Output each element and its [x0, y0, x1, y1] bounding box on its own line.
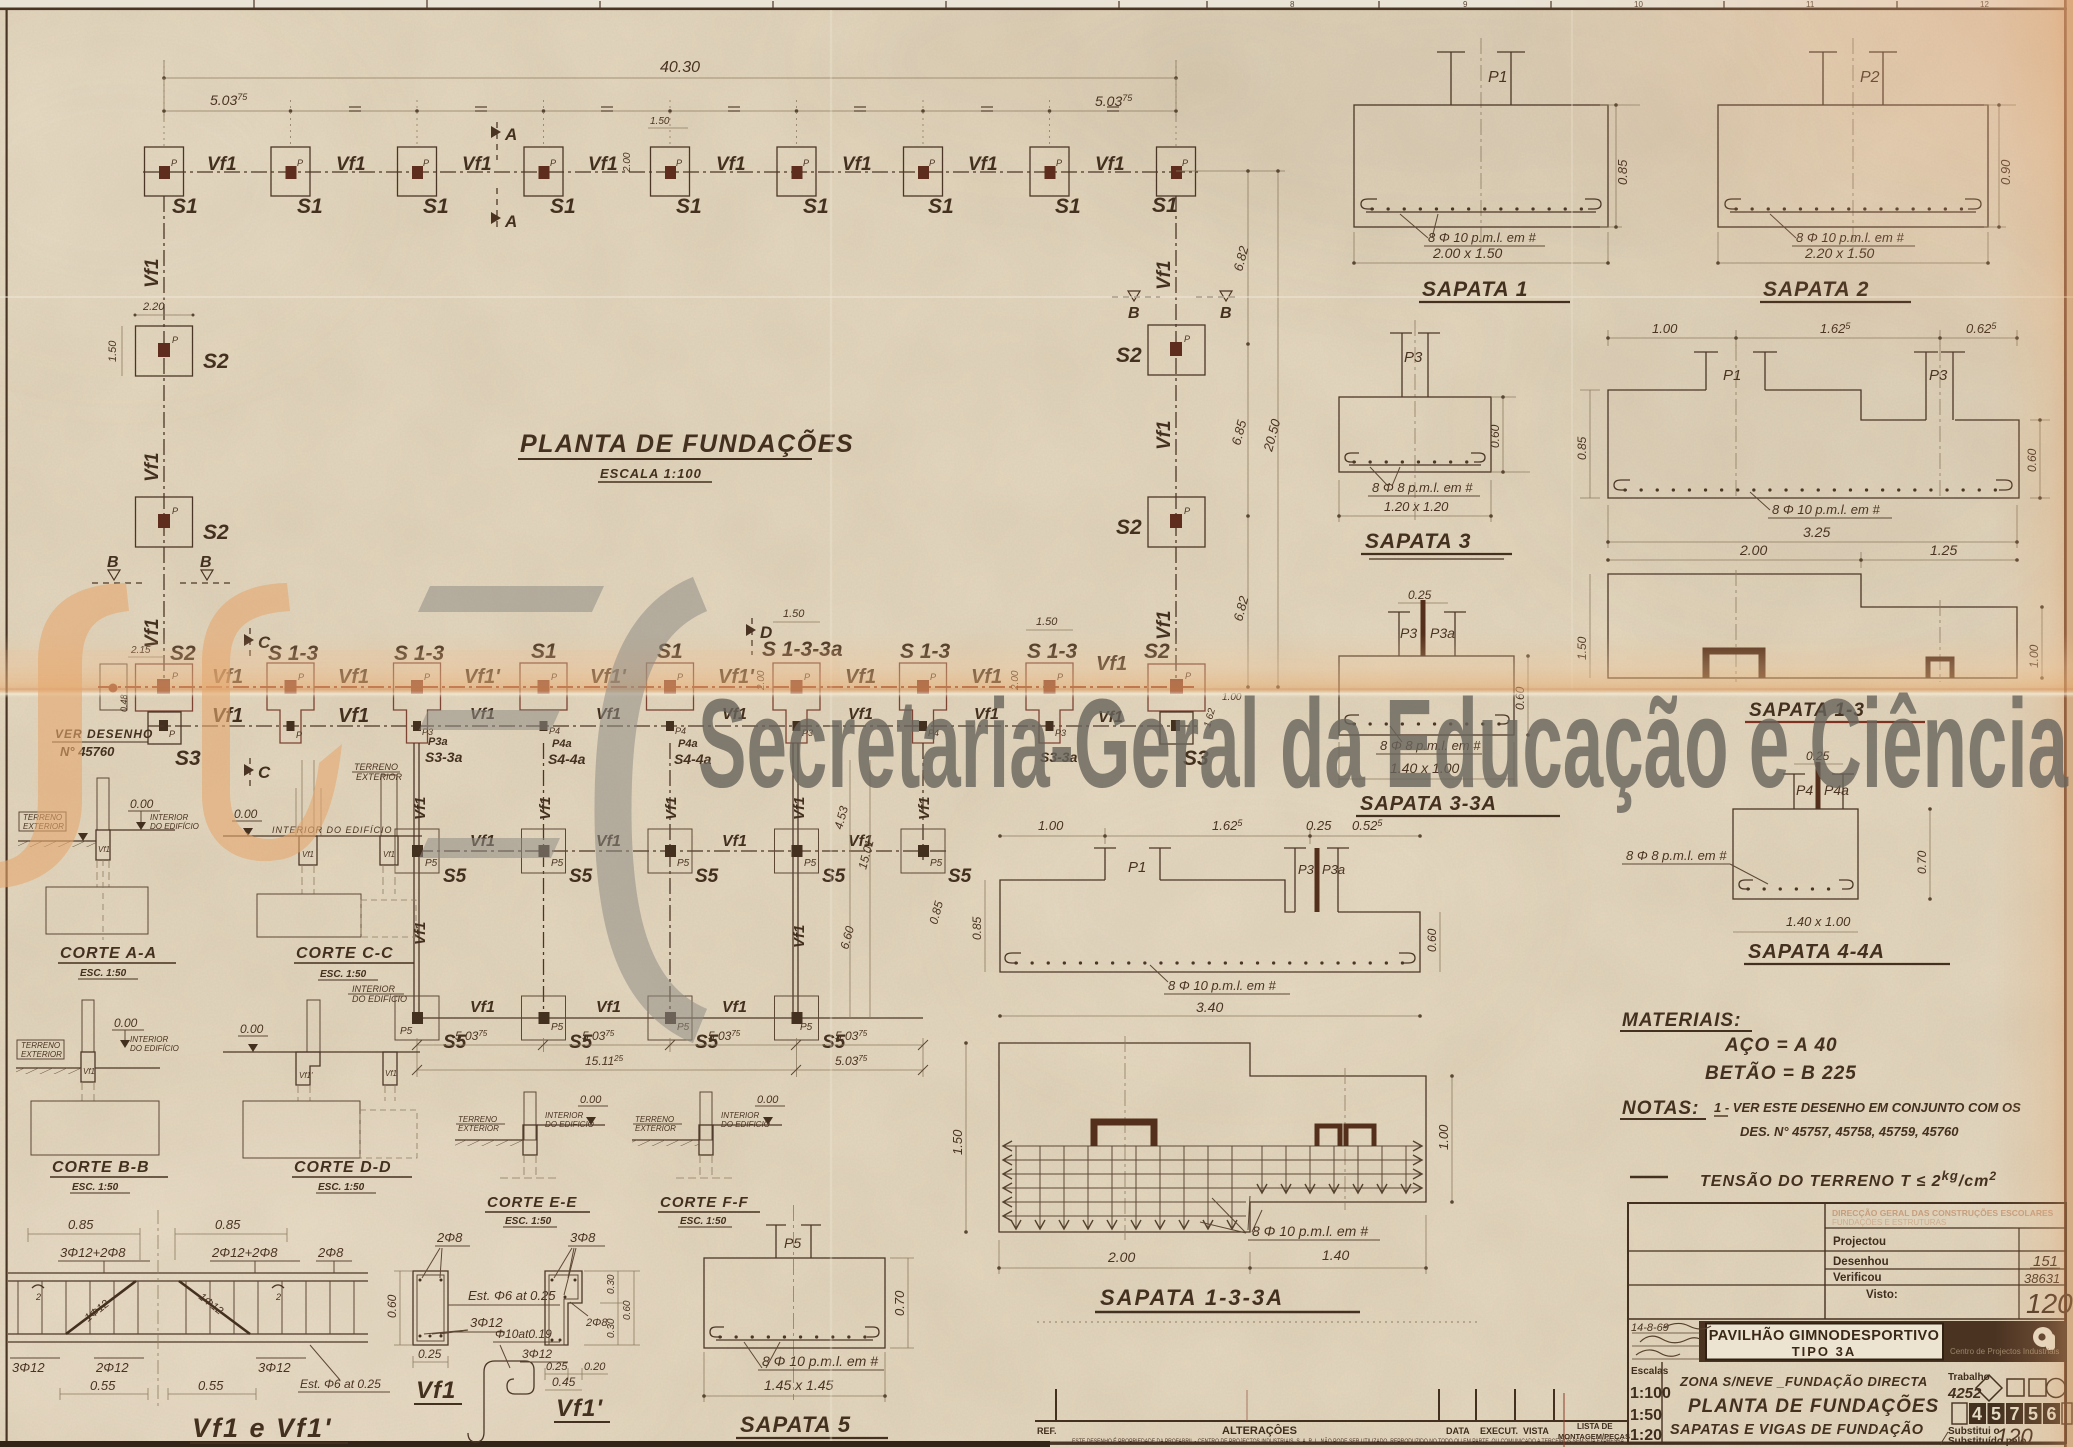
svg-text:A: A [504, 212, 517, 231]
svg-text:P5: P5 [425, 858, 438, 869]
svg-text:Est. Φ6 at 0.25: Est. Φ6 at 0.25 [300, 1377, 381, 1391]
svg-text:3.25: 3.25 [1803, 524, 1830, 540]
svg-text:DATA: DATA [1446, 1426, 1470, 1436]
svg-text:P4: P4 [675, 726, 686, 736]
svg-text:2.00: 2.00 [1739, 542, 1767, 558]
svg-text:A: A [504, 125, 517, 144]
svg-text:FUNDAÇÕES E ESTRUTURAS: FUNDAÇÕES E ESTRUTURAS [1832, 1218, 1946, 1227]
svg-text:P5: P5 [930, 858, 943, 869]
svg-text:DES. N° 45757, 45758, 45759, 4: DES. N° 45757, 45758, 45759, 45760 [1740, 1124, 1959, 1139]
svg-text:S3-3a: S3-3a [425, 749, 463, 765]
svg-text:INTERIOR: INTERIOR [545, 1111, 583, 1120]
svg-text:4: 4 [1972, 1404, 1982, 1424]
svg-text:P: P [1184, 334, 1190, 344]
svg-text:0.60: 0.60 [1425, 928, 1439, 952]
svg-text:P5: P5 [551, 858, 564, 869]
svg-text:P5: P5 [784, 1235, 801, 1251]
svg-text:0.00: 0.00 [114, 1016, 138, 1030]
svg-text:Vf1: Vf1 [412, 797, 429, 820]
svg-text:Est. Φ6 at 0.25: Est. Φ6 at 0.25 [468, 1288, 556, 1303]
svg-text:8 Φ 10 p.m.l. em #: 8 Φ 10 p.m.l. em # [762, 1353, 878, 1369]
svg-text:ESC. 1:50: ESC. 1:50 [318, 1182, 365, 1193]
svg-text:Vf1 e Vf1': Vf1 e Vf1' [192, 1413, 332, 1443]
svg-text:0.60: 0.60 [622, 1300, 633, 1320]
svg-text:Φ10at0.19: Φ10at0.19 [495, 1327, 552, 1341]
svg-text:Vf1: Vf1 [1095, 154, 1125, 175]
svg-text:0.55: 0.55 [90, 1378, 116, 1393]
svg-text:EXTERIOR: EXTERIOR [21, 1050, 62, 1059]
svg-text:Vf1: Vf1 [470, 999, 495, 1016]
svg-text:ESC. 1:50: ESC. 1:50 [72, 1182, 119, 1193]
svg-text:1.50: 1.50 [950, 1129, 965, 1155]
svg-text:S3: S3 [175, 747, 201, 770]
svg-text:1.50: 1.50 [650, 116, 670, 127]
svg-text:SAPATA 3: SAPATA 3 [1365, 530, 1471, 553]
svg-text:Vf1: Vf1 [98, 845, 110, 854]
svg-text:Vf1: Vf1 [722, 999, 747, 1016]
svg-text:Vf1: Vf1 [385, 1069, 397, 1078]
svg-text:ESC. 1:50: ESC. 1:50 [505, 1216, 552, 1227]
svg-text:S1: S1 [803, 195, 829, 218]
svg-text:EXTERIOR: EXTERIOR [635, 1124, 676, 1133]
svg-text:Vf1: Vf1 [302, 850, 314, 859]
svg-text:S1: S1 [1152, 194, 1178, 217]
svg-text:0.85: 0.85 [68, 1217, 94, 1232]
svg-text:Vf1': Vf1' [556, 1395, 603, 1422]
svg-text:0.25: 0.25 [1306, 818, 1332, 833]
svg-text:LISTA DE: LISTA DE [1577, 1422, 1613, 1431]
svg-text:Vf1: Vf1 [336, 154, 366, 175]
svg-text:TERRENO: TERRENO [458, 1115, 497, 1124]
svg-text:P: P [169, 729, 175, 739]
svg-text:P: P [171, 158, 177, 168]
svg-text:S2: S2 [203, 521, 229, 544]
svg-text:CORTE B-B: CORTE B-B [52, 1159, 150, 1176]
svg-text:DO EDIFICIO: DO EDIFICIO [545, 1120, 594, 1129]
svg-text:P1: P1 [1128, 859, 1146, 876]
svg-text:S1: S1 [1055, 195, 1081, 218]
svg-text:CORTE F-F: CORTE F-F [660, 1194, 749, 1211]
svg-text:EXTERIOR: EXTERIOR [356, 772, 403, 782]
svg-text:INTERIOR: INTERIOR [130, 1035, 168, 1044]
svg-text:S2: S2 [1116, 344, 1142, 367]
svg-text:0.00: 0.00 [234, 807, 258, 821]
svg-text:ZONA S/NEVE _FUNDAÇÃO DIRECTA: ZONA S/NEVE _FUNDAÇÃO DIRECTA [1679, 1374, 1928, 1389]
svg-text:P5: P5 [400, 1026, 413, 1037]
svg-text:P: P [172, 506, 178, 516]
svg-text:S1: S1 [297, 195, 323, 218]
svg-text:1:100: 1:100 [1630, 1385, 1671, 1402]
svg-text:DO EDIFÍCIO: DO EDIFÍCIO [352, 994, 407, 1004]
svg-text:S1: S1 [423, 195, 449, 218]
svg-text:DO EDIFÍCIO: DO EDIFÍCIO [150, 822, 199, 831]
svg-text:PAVILHÃO GIMNODESPORTIVO: PAVILHÃO GIMNODESPORTIVO [1709, 1326, 1940, 1344]
svg-text:0.20: 0.20 [584, 1361, 606, 1373]
svg-text:NOTAS:: NOTAS: [1622, 1098, 1699, 1119]
svg-text:1.50: 1.50 [783, 608, 805, 620]
svg-text:VISTA: VISTA [1523, 1426, 1549, 1436]
svg-text:Vf1: Vf1 [462, 154, 492, 175]
svg-text:Vf1: Vf1 [968, 154, 998, 175]
svg-text:Vf1: Vf1 [142, 258, 163, 288]
svg-text:2: 2 [35, 1292, 41, 1302]
svg-text:Vf1: Vf1 [663, 797, 680, 820]
svg-text:Vf1: Vf1 [207, 154, 237, 175]
svg-text:0.70: 0.70 [1915, 850, 1929, 874]
svg-text:Vf1: Vf1 [142, 452, 163, 482]
svg-text:8 Φ 10 p.m.l. em #: 8 Φ 10 p.m.l. em # [1772, 502, 1880, 517]
svg-text:P5: P5 [677, 858, 690, 869]
svg-text:2.00: 2.00 [622, 152, 633, 173]
svg-text:S5: S5 [695, 866, 719, 887]
svg-text:1.00: 1.00 [1436, 1124, 1451, 1150]
svg-text:S1: S1 [676, 195, 702, 218]
svg-text:0.00: 0.00 [130, 797, 154, 811]
svg-text:TERRENO: TERRENO [21, 1041, 60, 1050]
svg-text:Vf1: Vf1 [791, 925, 808, 948]
svg-text:2.00: 2.00 [1107, 1249, 1135, 1265]
svg-text:8 Φ 8 p.m.l. em #: 8 Φ 8 p.m.l. em # [1626, 848, 1727, 863]
svg-text:EXTERIOR: EXTERIOR [458, 1124, 499, 1133]
svg-text:REF.: REF. [1037, 1426, 1057, 1436]
svg-text:0.85: 0.85 [1575, 436, 1589, 460]
svg-text:MATERIAIS:: MATERIAIS: [1622, 1010, 1741, 1031]
svg-text:0.30: 0.30 [606, 1318, 617, 1338]
svg-text:2Φ8: 2Φ8 [436, 1230, 463, 1245]
svg-text:Desenhou: Desenhou [1833, 1256, 1889, 1268]
svg-text:0.25: 0.25 [546, 1361, 568, 1373]
svg-text:0.45: 0.45 [552, 1375, 576, 1389]
svg-text:B: B [1220, 305, 1232, 322]
svg-text:ALTERAÇÔES: ALTERAÇÔES [1222, 1424, 1297, 1437]
svg-text:S1: S1 [550, 195, 576, 218]
svg-text:EXECUT.: EXECUT. [1480, 1426, 1518, 1436]
svg-text:Projectou: Projectou [1833, 1236, 1886, 1248]
svg-text:1.20 x 1.20: 1.20 x 1.20 [1384, 499, 1449, 514]
svg-text:1.50: 1.50 [1036, 616, 1058, 628]
svg-text:2Φ12: 2Φ12 [95, 1360, 129, 1375]
svg-text:SAPATAS E VIGAS DE FUNDAÇÃO: SAPATAS E VIGAS DE FUNDAÇÃO [1670, 1420, 1924, 1438]
svg-text:1.00: 1.00 [1038, 818, 1064, 833]
svg-text:2: 2 [275, 1292, 281, 1302]
svg-text:0.70: 0.70 [892, 1290, 907, 1316]
svg-text:Secretaria-Geral da Educação e: Secretaria-Geral da Educação e Ciência [698, 673, 2069, 814]
svg-text:B: B [1128, 305, 1140, 322]
svg-text:Vf1: Vf1 [596, 999, 621, 1016]
svg-text:S4-4a: S4-4a [548, 751, 586, 767]
svg-text:P5: P5 [551, 1022, 564, 1033]
svg-text:40.30: 40.30 [660, 59, 700, 76]
svg-text:P3: P3 [1404, 349, 1423, 366]
svg-text:ESC. 1:50: ESC. 1:50 [320, 969, 367, 980]
svg-text:Vf1: Vf1 [537, 797, 554, 820]
svg-text:2Φ8: 2Φ8 [317, 1245, 344, 1260]
svg-text:1:50: 1:50 [1630, 1407, 1662, 1424]
svg-text:PLANTA DE FUNDAÇÕES: PLANTA DE FUNDAÇÕES [520, 428, 854, 458]
svg-text:B: B [200, 554, 212, 571]
svg-text:PLANTA DE FUNDAÇÕES: PLANTA DE FUNDAÇÕES [1688, 1395, 1939, 1417]
svg-text:S1: S1 [172, 195, 198, 218]
svg-text:3Φ12: 3Φ12 [522, 1347, 552, 1361]
svg-text:0.00: 0.00 [580, 1094, 602, 1106]
svg-text:0.30: 0.30 [606, 1274, 617, 1294]
svg-text:DO EDIFICIO: DO EDIFICIO [721, 1120, 770, 1129]
svg-text:9: 9 [1463, 0, 1468, 9]
svg-text:Escalas: Escalas [1631, 1366, 1669, 1377]
svg-text:Vf1: Vf1 [1154, 420, 1175, 450]
svg-text:P: P [676, 158, 682, 168]
svg-text:1.40: 1.40 [1322, 1247, 1349, 1263]
svg-text:ESC. 1:50: ESC. 1:50 [680, 1216, 727, 1227]
svg-text:1.50: 1.50 [107, 340, 119, 362]
svg-text:P: P [1182, 158, 1188, 168]
svg-text:INTERIOR: INTERIOR [352, 984, 396, 994]
svg-text:Vf1: Vf1 [716, 154, 746, 175]
svg-text:0.60: 0.60 [385, 1294, 399, 1318]
svg-text:3.40: 3.40 [1196, 999, 1223, 1015]
svg-text:P3a: P3a [428, 736, 448, 748]
svg-text:1.45 x 1.45: 1.45 x 1.45 [764, 1377, 833, 1393]
svg-text:P4a: P4a [678, 738, 698, 750]
svg-text:AÇO = A 40: AÇO = A 40 [1724, 1035, 1838, 1056]
svg-text:8 Φ 10 p.m.l. em #: 8 Φ 10 p.m.l. em # [1168, 978, 1276, 993]
svg-text:1.40 x 1.00: 1.40 x 1.00 [1786, 914, 1851, 929]
svg-text:Vf1: Vf1 [722, 833, 747, 850]
svg-text:B: B [107, 554, 119, 571]
svg-text:S5: S5 [443, 866, 467, 887]
svg-text:P3a: P3a [1322, 862, 1345, 877]
svg-text:S2: S2 [203, 350, 229, 373]
svg-text:SAPATA 4-4A: SAPATA 4-4A [1748, 941, 1885, 963]
svg-text:P3: P3 [1298, 862, 1315, 877]
svg-text:Vf1: Vf1 [588, 154, 618, 175]
svg-text:3Φ12: 3Φ12 [12, 1360, 45, 1375]
svg-text:CORTE A-A: CORTE A-A [60, 945, 157, 962]
svg-text:P4a: P4a [552, 738, 572, 750]
svg-text:SAPATA 1-3-3A: SAPATA 1-3-3A [1100, 1285, 1284, 1310]
svg-text:P5: P5 [800, 1022, 813, 1033]
svg-text:3Φ12+2Φ8: 3Φ12+2Φ8 [60, 1245, 126, 1260]
svg-text:8 Φ 10 p.m.l. em #: 8 Φ 10 p.m.l. em # [1252, 1223, 1368, 1239]
svg-text:2Φ12+2Φ8: 2Φ12+2Φ8 [211, 1245, 278, 1260]
svg-text:0.00: 0.00 [757, 1094, 779, 1106]
svg-text:P: P [550, 158, 556, 168]
svg-text:Vf1: Vf1 [1154, 260, 1175, 290]
svg-text:P: P [1184, 506, 1190, 516]
svg-text:Vf1: Vf1 [338, 705, 369, 727]
svg-text:Vf1: Vf1 [83, 1067, 95, 1076]
svg-text:ESTE DESENHO É PROPRIEDADE DA: ESTE DESENHO É PROPRIEDADE DA PROFABRIL … [1072, 1438, 1624, 1445]
svg-text:INTERIOR: INTERIOR [721, 1111, 759, 1120]
svg-text:0.00: 0.00 [240, 1022, 264, 1036]
svg-text:8: 8 [1290, 0, 1295, 9]
svg-text:DO EDIFÍCIO: DO EDIFÍCIO [130, 1044, 179, 1053]
svg-text:TERRENO: TERRENO [354, 762, 398, 772]
svg-text:CORTE E-E: CORTE E-E [487, 1194, 577, 1211]
svg-text:Vf1: Vf1 [842, 154, 872, 175]
svg-text:S5: S5 [948, 866, 972, 887]
svg-text:S1: S1 [928, 195, 954, 218]
svg-text:S5: S5 [569, 866, 593, 887]
svg-text:3Φ12: 3Φ12 [258, 1360, 291, 1375]
svg-text:8 Φ 8 p.m.l. em #: 8 Φ 8 p.m.l. em # [1372, 480, 1473, 495]
svg-text:ESCALA 1:100: ESCALA 1:100 [600, 466, 702, 481]
svg-text:Vf1: Vf1 [416, 1377, 456, 1404]
svg-text:0.85: 0.85 [970, 916, 984, 940]
svg-text:0.25: 0.25 [418, 1347, 442, 1361]
svg-text:Vf1: Vf1 [412, 922, 429, 945]
svg-text:BETÃO = B 225: BETÃO = B 225 [1705, 1062, 1857, 1084]
svg-text:C: C [258, 763, 271, 782]
svg-text:Visto:: Visto: [1866, 1289, 1898, 1301]
svg-text:INTERIOR: INTERIOR [150, 813, 188, 822]
svg-text:P: P [929, 158, 935, 168]
svg-text:P: P [172, 335, 178, 345]
svg-text:CORTE C-C: CORTE C-C [296, 945, 394, 962]
svg-text:TIPO 3A: TIPO 3A [1792, 1344, 1857, 1359]
svg-text:P: P [297, 158, 303, 168]
svg-text:1:20: 1:20 [1630, 1427, 1662, 1444]
svg-text:Vf1: Vf1 [383, 850, 395, 859]
svg-text:1.25: 1.25 [1930, 542, 1957, 558]
svg-text:0.85: 0.85 [215, 1217, 241, 1232]
svg-text:3Φ8: 3Φ8 [570, 1230, 596, 1245]
svg-text:Verificou: Verificou [1833, 1272, 1882, 1284]
svg-text:S5: S5 [822, 866, 846, 887]
svg-text:TERRENO: TERRENO [635, 1115, 674, 1124]
svg-text:2Φ8: 2Φ8 [585, 1317, 608, 1329]
svg-text:2.00 x 1.50: 2.00 x 1.50 [1432, 245, 1502, 261]
svg-text:P: P [296, 730, 302, 740]
svg-text:2.20: 2.20 [142, 301, 165, 313]
svg-text:S2: S2 [1116, 516, 1142, 539]
svg-text:0.60: 0.60 [1488, 424, 1502, 448]
svg-text:P5: P5 [804, 858, 817, 869]
svg-text:Vf1': Vf1' [299, 1071, 313, 1080]
svg-text:0.25: 0.25 [1408, 588, 1432, 602]
svg-text:P: P [803, 158, 809, 168]
svg-text:ESC. 1:50: ESC. 1:50 [80, 968, 127, 979]
svg-text:P: P [1056, 158, 1062, 168]
svg-text:P: P [423, 158, 429, 168]
svg-text:CORTE D-D: CORTE D-D [294, 1159, 392, 1176]
svg-text:SAPATA 5: SAPATA 5 [740, 1412, 851, 1437]
svg-text:0.55: 0.55 [198, 1378, 224, 1393]
svg-text:1 - VER ESTE DESENHO EM CONJUN: 1 - VER ESTE DESENHO EM CONJUNTO COM OS [1714, 1100, 2021, 1115]
